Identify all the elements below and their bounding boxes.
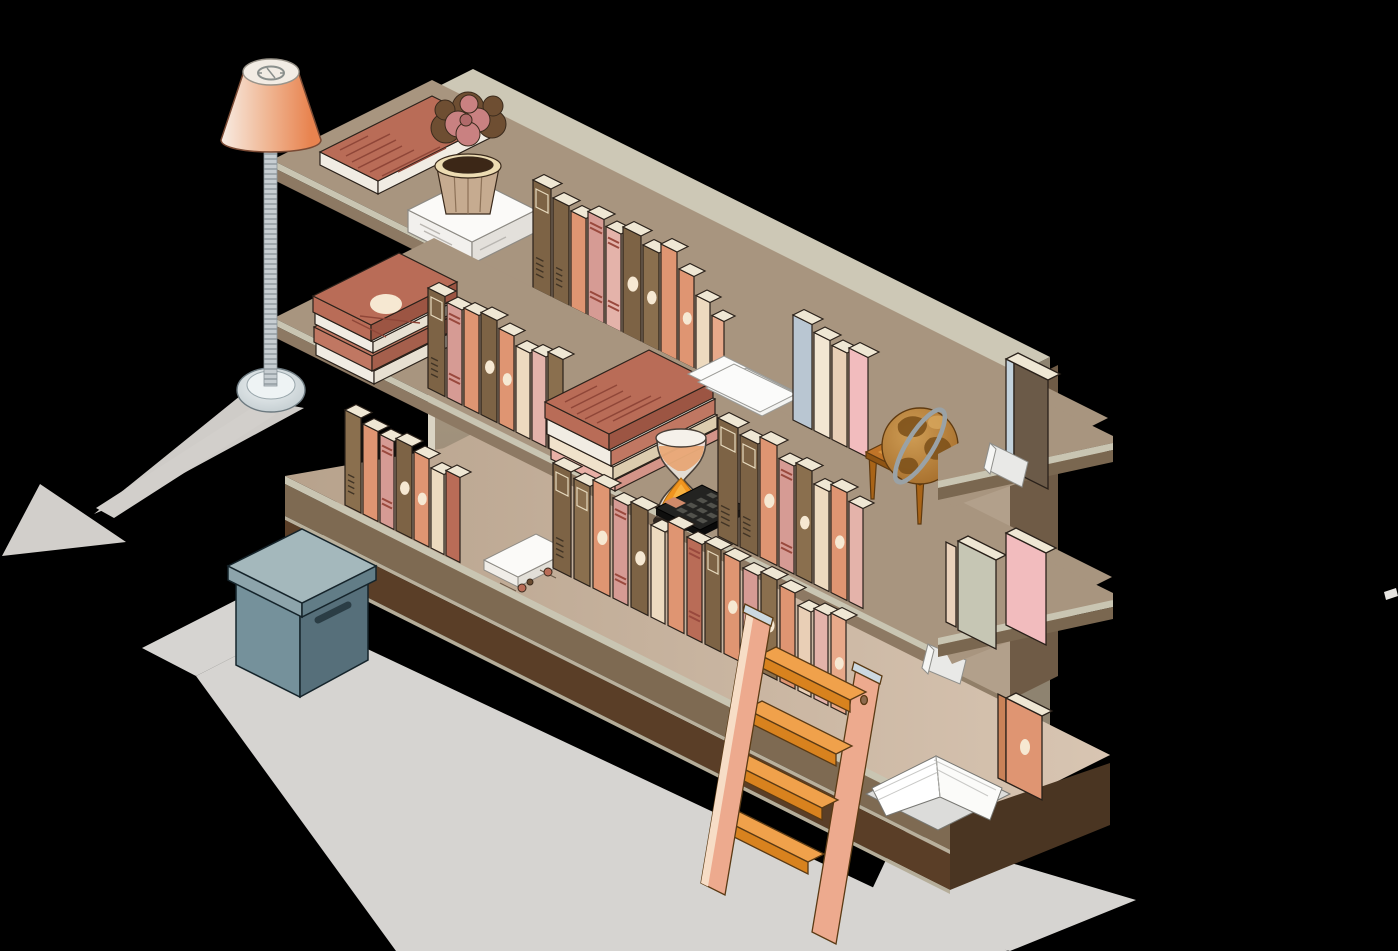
illustration-canvas: [0, 0, 1398, 951]
plant-foliage: [431, 92, 506, 146]
